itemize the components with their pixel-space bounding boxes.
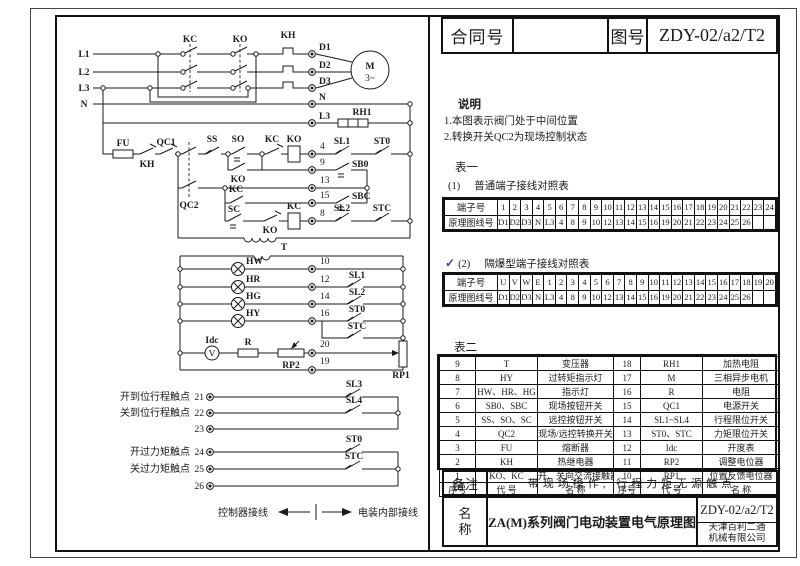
drawing-title: ZA(M)系列阀门电动装置电气原理图 — [488, 498, 698, 545]
component-code: RP2 — [641, 455, 703, 469]
label-wire-d1: D1 — [319, 43, 331, 53]
component-row: 4 QC2 现场/远控转换开关 13 ST0、STC 力矩限位开关 — [440, 427, 780, 441]
terminal-no-cell: 16 — [717, 275, 729, 291]
label-qc2: QC2 — [180, 201, 199, 211]
label-sb0: SB0 — [352, 160, 369, 170]
company-name: 天津百利二通 机械有限公司 — [698, 523, 776, 545]
terminal-no-cell: 1 — [498, 200, 510, 216]
label-l3: L3 — [78, 84, 89, 94]
wire-no-cell: L3 — [544, 290, 556, 304]
wire-no-cell: 14 — [625, 290, 637, 304]
component-table: 9 T 变压器 18 RH1 加热电阻 8 HY 过转矩指示灯 17 M — [437, 354, 777, 470]
terminal-no-cell: 15 — [660, 200, 672, 216]
component-no: 8 — [440, 371, 476, 385]
terminal-no-cell: 18 — [694, 200, 706, 216]
table1-title: 表一 — [455, 159, 478, 175]
label-st0-b: ST0 — [349, 305, 366, 315]
wire-no-cell: D1 — [498, 290, 510, 304]
terminal-table-flameproof: 端子号 UVWE1234567891011121314151617181920 … — [442, 272, 778, 307]
label-kh-heater: KH — [281, 31, 296, 41]
label-fu: FU — [117, 139, 130, 149]
label-kc-coil: KC — [287, 202, 301, 212]
terminal-no-cell: E — [532, 275, 544, 291]
company-line2: 机械有限公司 — [708, 534, 765, 545]
terminal-no-cell: 14 — [648, 200, 660, 216]
terminals — [207, 51, 316, 490]
fuse-fu — [113, 150, 133, 158]
wire-no-cell: 26 — [741, 290, 753, 304]
label-stc-c: STC — [345, 452, 364, 462]
label-term-25: 25 — [195, 465, 205, 475]
table1-normal-marker: (1) — [448, 181, 460, 192]
terminal-no-cell: 8 — [579, 200, 591, 216]
component-no: 6 — [440, 399, 476, 413]
check-mark: ✓ — [445, 256, 455, 270]
wire-no-cell: 19 — [660, 215, 672, 229]
label-close-torque-contact: 关过力矩触点 — [130, 462, 190, 475]
terminal-no-cell: 8 — [625, 275, 637, 291]
label-term-10: 10 — [320, 257, 330, 267]
label-term-19: 19 — [320, 357, 330, 367]
table1-flameproof-marker: (2) — [458, 259, 470, 270]
lamp-hw — [232, 263, 245, 276]
circuit-schematic: L1 L2 L3 N KC KO KH D1 D2 D3 N L3 RH1 M … — [55, 15, 428, 550]
label-term-9: 9 — [320, 158, 325, 168]
label-hy: HY — [246, 309, 260, 319]
drawing-number: ZDY-02/a2/T2 — [698, 498, 776, 523]
terminal-no-cell: 19 — [752, 275, 764, 291]
remarks-box: 备注 带现场操作, 行程力矩无源触点 — [442, 470, 778, 496]
component-name: 远控按钮开关 — [538, 413, 614, 427]
component-no: 5 — [440, 413, 476, 427]
component-name: 行程限位开关 — [703, 413, 780, 427]
component-no: 7 — [440, 385, 476, 399]
component-no: 12 — [614, 441, 641, 455]
company-line1: 天津百利二通 — [708, 523, 765, 534]
wire-no-cell: N — [532, 215, 544, 229]
label-term-26: 26 — [195, 482, 205, 492]
wire-no-cell: 23 — [706, 215, 718, 229]
terminal-no-cell: 24 — [764, 200, 776, 216]
label-rp2: RP2 — [282, 361, 300, 371]
component-name: 指示灯 — [538, 385, 614, 399]
label-sbc: SBC — [352, 192, 371, 202]
wire-no-cell: 21 — [683, 215, 695, 229]
component-no: 18 — [614, 357, 641, 371]
wire-no-cell: 16 — [648, 215, 660, 229]
terminal-no-cell: 3 — [567, 275, 579, 291]
component-code: QC2 — [476, 427, 538, 441]
label-r: R — [245, 338, 252, 348]
wire-number-row: 原理图线号 D1D2D3NL34891012131415161920212223… — [445, 215, 776, 229]
potentiometer-rp2 — [278, 341, 304, 357]
contract-no-label: 合同号 — [443, 19, 514, 52]
title-block: 名 称 ZA(M)系列阀门电动装置电气原理图 ZDY-02/a2/T2 天津百利… — [442, 496, 778, 547]
component-name: 过转矩指示灯 — [538, 371, 614, 385]
component-code: R — [641, 385, 703, 399]
component-code: Idc — [641, 441, 703, 455]
label-st0-a: ST0 — [374, 137, 391, 147]
notes-title: 说明 — [458, 96, 481, 112]
wire-no-cell: 23 — [706, 290, 718, 304]
component-no: 9 — [440, 357, 476, 371]
title-block-right-column: ZDY-02/a2/T2 天津百利二通 机械有限公司 — [698, 498, 776, 545]
label-rp1: RP1 — [392, 371, 410, 381]
label-term-4: 4 — [320, 142, 325, 152]
component-name: 热继电器 — [538, 455, 614, 469]
contract-no-value — [514, 19, 609, 52]
label-idc: Idc — [205, 336, 218, 346]
component-code: SL1~SL4 — [641, 413, 703, 427]
label-so: SO — [232, 135, 245, 145]
name-label: 名 称 — [444, 498, 488, 545]
wire-no-cell: 9 — [579, 215, 591, 229]
terminal-no-cell: 11 — [660, 275, 672, 291]
label-term-8: 8 — [320, 209, 325, 219]
terminal-no-cell: 22 — [741, 200, 753, 216]
label-sl2-a: SL2 — [334, 204, 351, 214]
terminal-no-cell: 12 — [625, 200, 637, 216]
terminal-no-cell: 10 — [602, 200, 614, 216]
component-name: 三相异步电机 — [703, 371, 780, 385]
name-label-char2: 称 — [458, 522, 471, 538]
label-kc-seal: KC — [229, 185, 243, 195]
label-wire-d2: D2 — [319, 61, 331, 71]
component-row: 2 KH 热继电器 11 RP2 调整电位器 — [440, 455, 780, 469]
label-term-23: 23 — [195, 425, 205, 435]
remarks-text: 带现场操作, 行程力矩无源触点 — [488, 472, 776, 494]
terminal-no-cell: 11 — [613, 200, 625, 216]
component-code: HW、HR、HG — [476, 385, 538, 399]
terminal-table-normal: 端子号 123456789101112131415161718192021222… — [442, 197, 778, 232]
wire-no-cell: 24 — [717, 215, 729, 229]
panel-divider — [428, 15, 430, 550]
potentiometer-rp1 — [392, 341, 407, 367]
wiring-boundary — [278, 504, 352, 520]
label-term-14: 14 — [320, 292, 330, 302]
wire-no-cell: 20 — [671, 215, 683, 229]
component-code: SS、SO、SC — [476, 413, 538, 427]
label-ss: SS — [207, 135, 218, 145]
wire-no-cell: 13 — [613, 290, 625, 304]
label-sl1-b: SL1 — [349, 271, 366, 281]
wire-no-cell: 14 — [625, 215, 637, 229]
label-hw: HW — [246, 257, 263, 267]
wire-no-cell — [764, 215, 776, 229]
component-no: 14 — [614, 413, 641, 427]
wire-no-cell: 12 — [602, 290, 614, 304]
label-ko-interlock: KO — [263, 226, 278, 236]
wire-no-cell: 12 — [602, 215, 614, 229]
table1-flameproof-label: 隔爆型端子接线对照表 — [484, 259, 589, 270]
label-open-travel-contact: 开到位行程触点 — [120, 390, 190, 403]
wire-no-cell: 15 — [636, 290, 648, 304]
label-kc-contactor: KC — [183, 35, 197, 45]
note-item-1: 1.本图表示阀门处于中间位置 — [444, 113, 578, 128]
table2-title: 表二 — [454, 339, 477, 355]
wire-no-cell: 8 — [567, 290, 579, 304]
table1-flameproof-caption: ✓(2)隔爆型端子接线对照表 — [445, 256, 589, 271]
wire-no-cell: 16 — [648, 290, 660, 304]
terminal-no-cell: 23 — [752, 200, 764, 216]
wire-no-cell: 8 — [567, 215, 579, 229]
wire-no-cell: 10 — [590, 215, 602, 229]
component-row: 6 SB0、SBC 现场按钮开关 15 QC1 电源开关 — [440, 399, 780, 413]
label-term-16: 16 — [320, 309, 330, 319]
terminal-no-cell: 6 — [602, 275, 614, 291]
label-hg: HG — [246, 292, 261, 302]
terminal-no-cell: 21 — [729, 200, 741, 216]
wire-no-cell: 22 — [694, 215, 706, 229]
label-sl1-a: SL1 — [334, 137, 351, 147]
component-name: 现场按钮开关 — [538, 399, 614, 413]
terminal-no-cell: 17 — [683, 200, 695, 216]
component-no: 11 — [614, 455, 641, 469]
component-code: HY — [476, 371, 538, 385]
component-row: 7 HW、HR、HG 指示灯 16 R 电阻 — [440, 385, 780, 399]
drawing-sheet: L1 L2 L3 N KC KO KH D1 D2 D3 N L3 RH1 M … — [0, 0, 800, 566]
wire-no-cell: D3 — [521, 290, 533, 304]
label-voltmeter: V — [209, 350, 216, 360]
component-no: 4 — [440, 427, 476, 441]
terminal-no-cell: 19 — [706, 200, 718, 216]
label-rh1: RH1 — [353, 108, 372, 118]
terminal-no-cell: 10 — [648, 275, 660, 291]
component-name: 电阻 — [703, 385, 780, 399]
label-term-22: 22 — [195, 409, 205, 419]
coil-ko — [288, 146, 300, 162]
component-name: 力矩限位开关 — [703, 427, 780, 441]
component-row: 3 FU 熔断器 12 Idc 开度表 — [440, 441, 780, 455]
wire-no-cell: 25 — [729, 290, 741, 304]
label-ko-seal: KO — [231, 175, 246, 185]
terminal-number-row: 端子号 UVWE1234567891011121314151617181920 — [445, 275, 776, 291]
component-name: 现场/远控转换开关 — [538, 427, 614, 441]
wire-no-cell: 21 — [683, 290, 695, 304]
terminal-no-cell: 9 — [636, 275, 648, 291]
wire-no-cell: 15 — [636, 215, 648, 229]
terminal-no-cell: 7 — [567, 200, 579, 216]
wire-no-cell: D2 — [509, 215, 521, 229]
table1-normal-label: 普通端子接线对照表 — [474, 181, 569, 192]
label-term-15: 15 — [320, 191, 330, 201]
lamp-hr — [232, 281, 245, 294]
drawing-no-value: ZDY-02/a2/T2 — [648, 19, 776, 52]
component-code: RH1 — [641, 357, 703, 371]
component-name: 电源开关 — [703, 399, 780, 413]
label-wire-n: N — [319, 93, 326, 103]
component-code: T — [476, 357, 538, 371]
row-label-wire-no: 原理图线号 — [445, 215, 498, 229]
component-no: 13 — [614, 427, 641, 441]
terminal-no-cell: 3 — [521, 200, 533, 216]
terminal-no-cell: 4 — [579, 275, 591, 291]
component-code: QC1 — [641, 399, 703, 413]
terminal-no-cell: 7 — [613, 275, 625, 291]
label-sl2-b: SL2 — [349, 288, 366, 298]
wire-no-cell: N — [532, 290, 544, 304]
label-wire-l3: L3 — [319, 112, 330, 122]
table1-normal-caption: (1)普通端子接线对照表 — [448, 178, 569, 193]
component-code: SB0、SBC — [476, 399, 538, 413]
wire-no-cell: 9 — [579, 290, 591, 304]
terminal-no-cell: 15 — [706, 275, 718, 291]
component-row: 5 SS、SO、SC 远控按钮开关 14 SL1~SL4 行程限位开关 — [440, 413, 780, 427]
component-code: M — [641, 371, 703, 385]
label-l2: L2 — [78, 68, 89, 78]
label-sc: SC — [228, 205, 240, 215]
lamp-hy — [232, 315, 245, 328]
wire-no-cell: 25 — [729, 215, 741, 229]
terminal-no-cell: 9 — [590, 200, 602, 216]
label-stc-b: STC — [348, 322, 367, 332]
terminal-no-cell: W — [521, 275, 533, 291]
wire-no-cell: L3 — [544, 215, 556, 229]
wire-number-row: 原理图线号 D1D2D3NL34891012131415161920212223… — [445, 290, 776, 304]
label-term-24: 24 — [195, 448, 205, 458]
heater-rh1 — [338, 119, 368, 127]
label-term-12: 12 — [320, 275, 330, 285]
wire-no-cell — [752, 215, 764, 229]
resistor-r — [238, 349, 258, 357]
label-wire-d3: D3 — [319, 77, 331, 87]
component-name: 开度表 — [703, 441, 780, 455]
label-transformer: T — [281, 243, 288, 253]
terminal-no-cell: 20 — [764, 275, 776, 291]
label-ko-contactor: KO — [233, 35, 248, 45]
component-code: FU — [476, 441, 538, 455]
lamp-hg — [232, 298, 245, 311]
terminal-no-cell: 5 — [590, 275, 602, 291]
component-row: 8 HY 过转矩指示灯 17 M 三相异步电机 — [440, 371, 780, 385]
terminal-no-cell: V — [509, 275, 521, 291]
component-no: 15 — [614, 399, 641, 413]
coil-kc — [288, 213, 300, 229]
wire-no-cell: D2 — [509, 290, 521, 304]
drawing-no-label: 图号 — [609, 19, 648, 52]
name-label-char1: 名 — [458, 506, 471, 522]
component-name: 熔断器 — [538, 441, 614, 455]
wire-no-cell: D1 — [498, 215, 510, 229]
label-term-20: 20 — [320, 340, 330, 350]
terminal-no-cell: 20 — [717, 200, 729, 216]
terminal-no-cell: 12 — [671, 275, 683, 291]
component-no: 2 — [440, 455, 476, 469]
terminal-no-cell: 2 — [509, 200, 521, 216]
label-controller-wiring: 控制器接线 — [218, 506, 268, 519]
terminal-no-cell: 13 — [636, 200, 648, 216]
terminal-no-cell: 18 — [741, 275, 753, 291]
wire-no-cell — [764, 290, 776, 304]
terminal-no-cell: 6 — [555, 200, 567, 216]
label-term-21: 21 — [195, 393, 205, 403]
wire-no-cell: 22 — [694, 290, 706, 304]
row-label-terminal-no: 端子号 — [445, 275, 498, 291]
terminal-no-cell: 4 — [532, 200, 544, 216]
row-label-terminal-no: 端子号 — [445, 200, 498, 216]
terminal-number-row: 端子号 123456789101112131415161718192021222… — [445, 200, 776, 216]
label-sl4: SL4 — [346, 396, 363, 406]
label-motor: M — [366, 62, 375, 72]
terminal-no-cell: U — [498, 275, 510, 291]
terminal-no-cell: 1 — [544, 275, 556, 291]
label-term-13: 13 — [320, 176, 330, 186]
title-header-box: 合同号 图号 ZDY-02/a2/T2 — [441, 17, 778, 54]
terminal-no-cell: 2 — [555, 275, 567, 291]
component-code: ST0、STC — [641, 427, 703, 441]
wire-no-cell: 4 — [555, 290, 567, 304]
label-ko-coil: KO — [287, 135, 302, 145]
row-label-wire-no: 原理图线号 — [445, 290, 498, 304]
component-no: 3 — [440, 441, 476, 455]
component-no: 17 — [614, 371, 641, 385]
label-kc-interlock: KC — [265, 135, 279, 145]
terminal-no-cell: 5 — [544, 200, 556, 216]
wire-no-cell: 19 — [660, 290, 672, 304]
label-n: N — [81, 100, 88, 110]
label-motor-phase: 3~ — [365, 74, 375, 84]
label-st0-c: ST0 — [346, 435, 363, 445]
component-no: 16 — [614, 385, 641, 399]
label-kh-contact: KH — [140, 160, 155, 170]
terminal-no-cell: 17 — [729, 275, 741, 291]
wire-no-cell: D3 — [521, 215, 533, 229]
wire-no-cell: 26 — [741, 215, 753, 229]
wire-no-cell: 4 — [555, 215, 567, 229]
label-hr: HR — [246, 275, 260, 285]
label-close-travel-contact: 关到位行程触点 — [120, 406, 190, 419]
remarks-label: 备注 — [444, 472, 488, 494]
wire-no-cell — [752, 290, 764, 304]
component-code: KH — [476, 455, 538, 469]
wire-no-cell: 24 — [717, 290, 729, 304]
wire-no-cell: 13 — [613, 215, 625, 229]
label-stc-a: STC — [373, 204, 392, 214]
terminal-no-cell: 13 — [683, 275, 695, 291]
note-item-2: 2.转换开关QC2为现场控制状态 — [444, 129, 587, 144]
label-qc1: QC1 — [157, 138, 176, 148]
label-internal-wiring: 电装内部接线 — [358, 506, 418, 519]
label-l1: L1 — [78, 50, 89, 60]
wire-no-cell: 10 — [590, 290, 602, 304]
component-name: 变压器 — [538, 357, 614, 371]
component-row: 9 T 变压器 18 RH1 加热电阻 — [440, 357, 780, 371]
terminal-no-cell: 14 — [694, 275, 706, 291]
wire-no-cell: 20 — [671, 290, 683, 304]
label-open-torque-contact: 开过力矩触点 — [130, 445, 190, 458]
component-name: 加热电阻 — [703, 357, 780, 371]
terminal-no-cell: 16 — [671, 200, 683, 216]
label-sl3: SL3 — [346, 380, 363, 390]
component-name: 调整电位器 — [703, 455, 780, 469]
